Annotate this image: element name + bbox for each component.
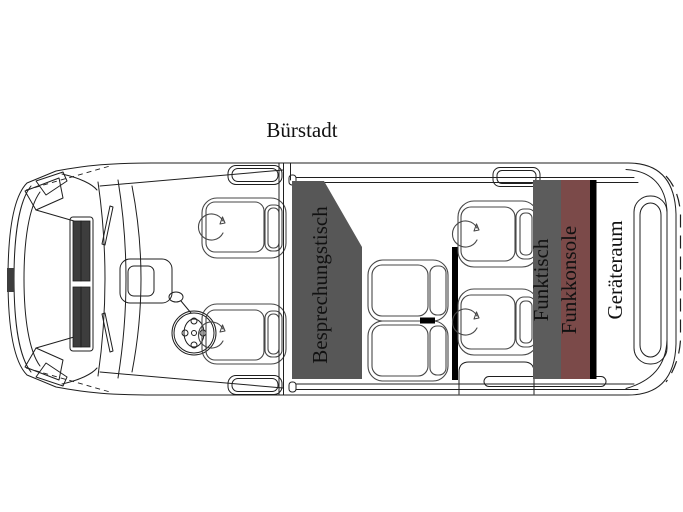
cab-door-window-top (228, 166, 282, 185)
radio-console-label: Funkkonsole (557, 226, 581, 335)
swivel-arrow-icon (452, 221, 479, 247)
dashboard (120, 186, 172, 372)
front-bumper (7, 186, 40, 372)
cab-seat-driver (198, 304, 286, 364)
radio-table-label: Funktisch (529, 238, 553, 321)
meeting-table: Besprechungstisch (292, 181, 362, 379)
vehicle-floorplan-page: Bürstadt (0, 0, 683, 512)
bench-seat-1 (368, 260, 448, 321)
equipment-room-label: Geräteraum (603, 220, 627, 319)
rear-door-open-outline (666, 176, 681, 382)
vehicle-diagram: Bürstadt (0, 0, 683, 512)
console-divider (590, 180, 597, 379)
radio-seat-1 (452, 201, 538, 267)
radio-seat-2 (452, 289, 538, 355)
hood (26, 166, 110, 392)
headlight-bottom (25, 348, 63, 380)
bench-seat-2 (368, 321, 448, 381)
mirror-top (36, 172, 67, 195)
grille-icon (70, 217, 93, 351)
bumper-vent (7, 268, 14, 292)
seat-mount (420, 318, 435, 324)
meeting-table-label: Besprechungstisch (308, 206, 332, 364)
headlight-top (25, 178, 63, 210)
rear-door (634, 196, 667, 364)
cab-seat-passenger (198, 198, 286, 258)
cab-door-window-bottom (228, 376, 282, 395)
wipers (102, 206, 113, 352)
gear-lever (169, 292, 191, 313)
radio-console: Funkkonsole (557, 180, 590, 379)
mirror-bottom (36, 363, 67, 386)
page-title: Bürstadt (266, 118, 337, 142)
